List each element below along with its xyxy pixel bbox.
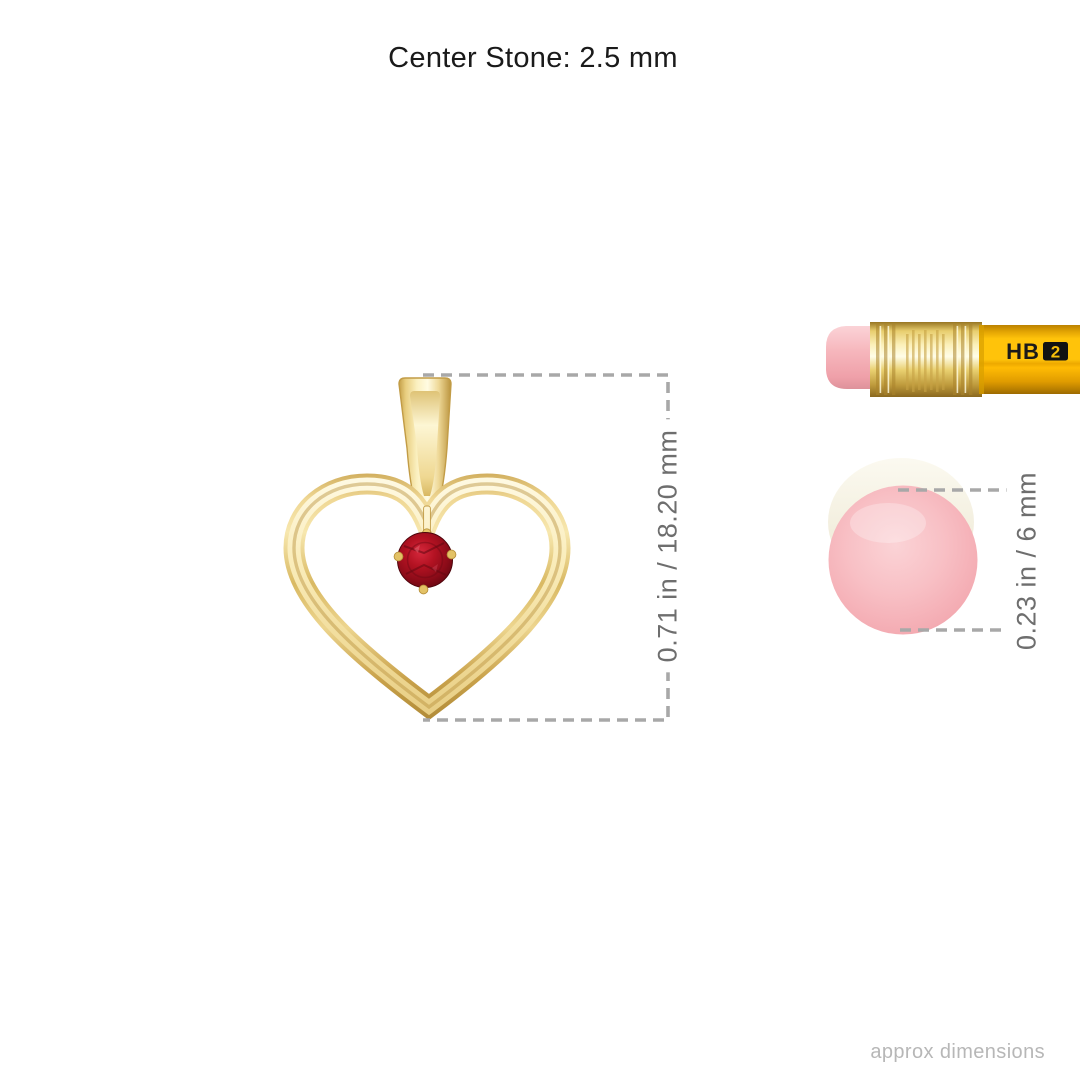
eraser-diameter-label: 0.23 in / 6 mm [1007,462,1048,660]
pendant-dimension-bracket [423,375,668,720]
dimension-annotations [0,0,1080,1080]
pendant-height-label: 0.71 in / 18.20 mm [648,420,689,673]
product-dimension-diagram: Center Stone: 2.5 mm [0,0,1080,1080]
